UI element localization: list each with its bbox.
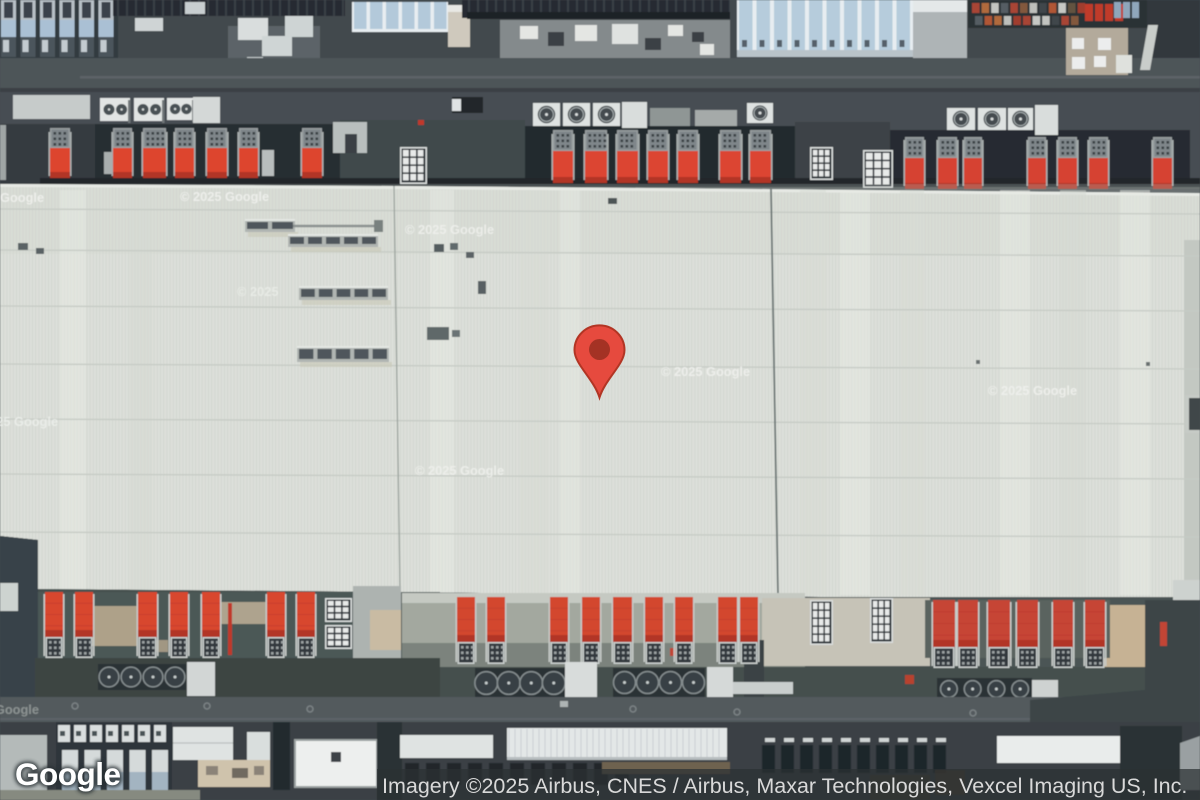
svg-text:© 2025 Google: © 2025 Google <box>180 189 269 204</box>
svg-text:Imagery ©2025 Airbus, CNES / A: Imagery ©2025 Airbus, CNES / Airbus, Max… <box>382 774 1187 798</box>
svg-text:© 2025: © 2025 <box>237 284 278 299</box>
svg-text:© 2025 Google: © 2025 Google <box>661 364 750 379</box>
svg-text:© 2025 Google: © 2025 Google <box>988 383 1077 398</box>
svg-text:© 2025 Google: © 2025 Google <box>415 463 504 478</box>
svg-text:025 Google: 025 Google <box>0 702 39 717</box>
svg-text:Google: Google <box>15 756 121 792</box>
svg-text:© 2025 Google: © 2025 Google <box>405 222 494 237</box>
svg-text:2025 Google: 2025 Google <box>0 414 58 429</box>
svg-text:© 2025 Google: © 2025 Google <box>0 190 44 205</box>
